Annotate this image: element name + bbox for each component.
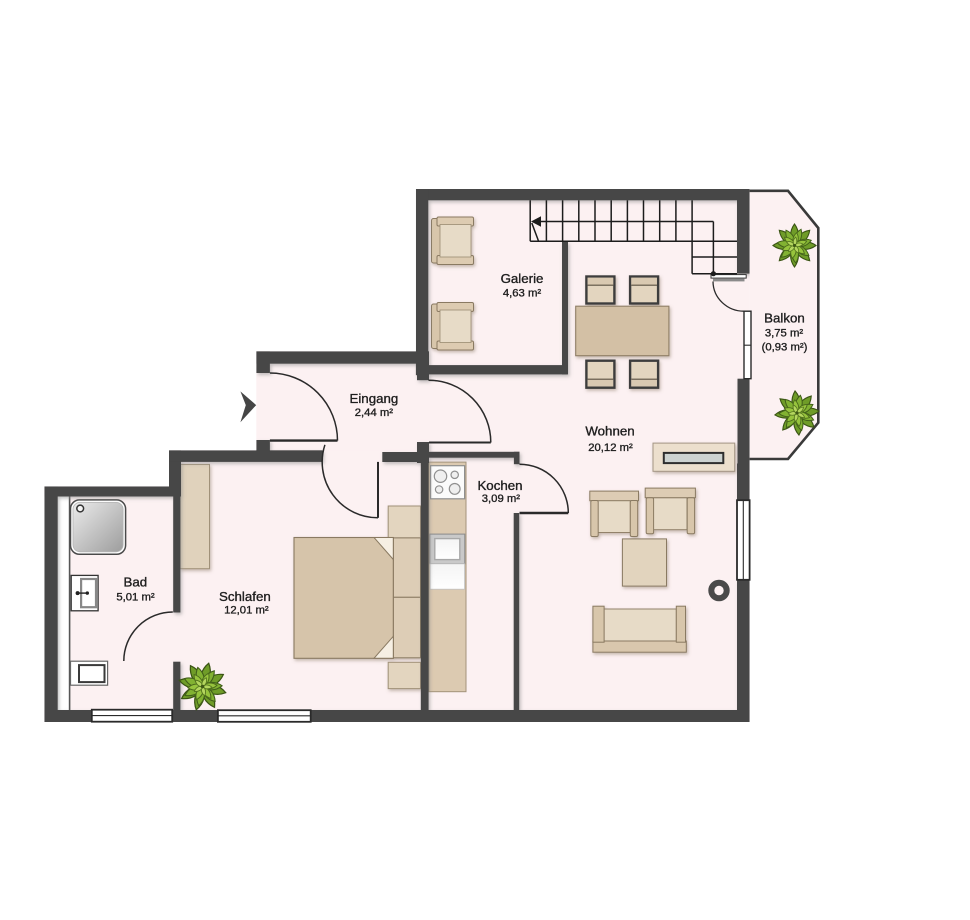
svg-text:4,63 m²: 4,63 m² <box>503 287 542 299</box>
svg-text:3,75 m²: 3,75 m² <box>765 328 804 340</box>
svg-text:2,44 m²: 2,44 m² <box>355 407 394 419</box>
svg-text:Wohnen: Wohnen <box>585 423 634 438</box>
svg-text:Galerie: Galerie <box>501 271 544 286</box>
svg-text:12,01 m²: 12,01 m² <box>224 604 269 616</box>
svg-text:(0,93 m²): (0,93 m²) <box>762 341 808 353</box>
svg-text:Eingang: Eingang <box>349 391 398 406</box>
svg-text:20,12 m²: 20,12 m² <box>588 442 633 454</box>
svg-text:3,09 m²: 3,09 m² <box>482 493 521 505</box>
svg-text:Bad: Bad <box>123 575 147 590</box>
svg-text:Schlafen: Schlafen <box>219 589 271 604</box>
svg-text:Kochen: Kochen <box>477 478 522 493</box>
svg-text:5,01 m²: 5,01 m² <box>116 591 155 603</box>
svg-text:Balkon: Balkon <box>764 311 805 326</box>
